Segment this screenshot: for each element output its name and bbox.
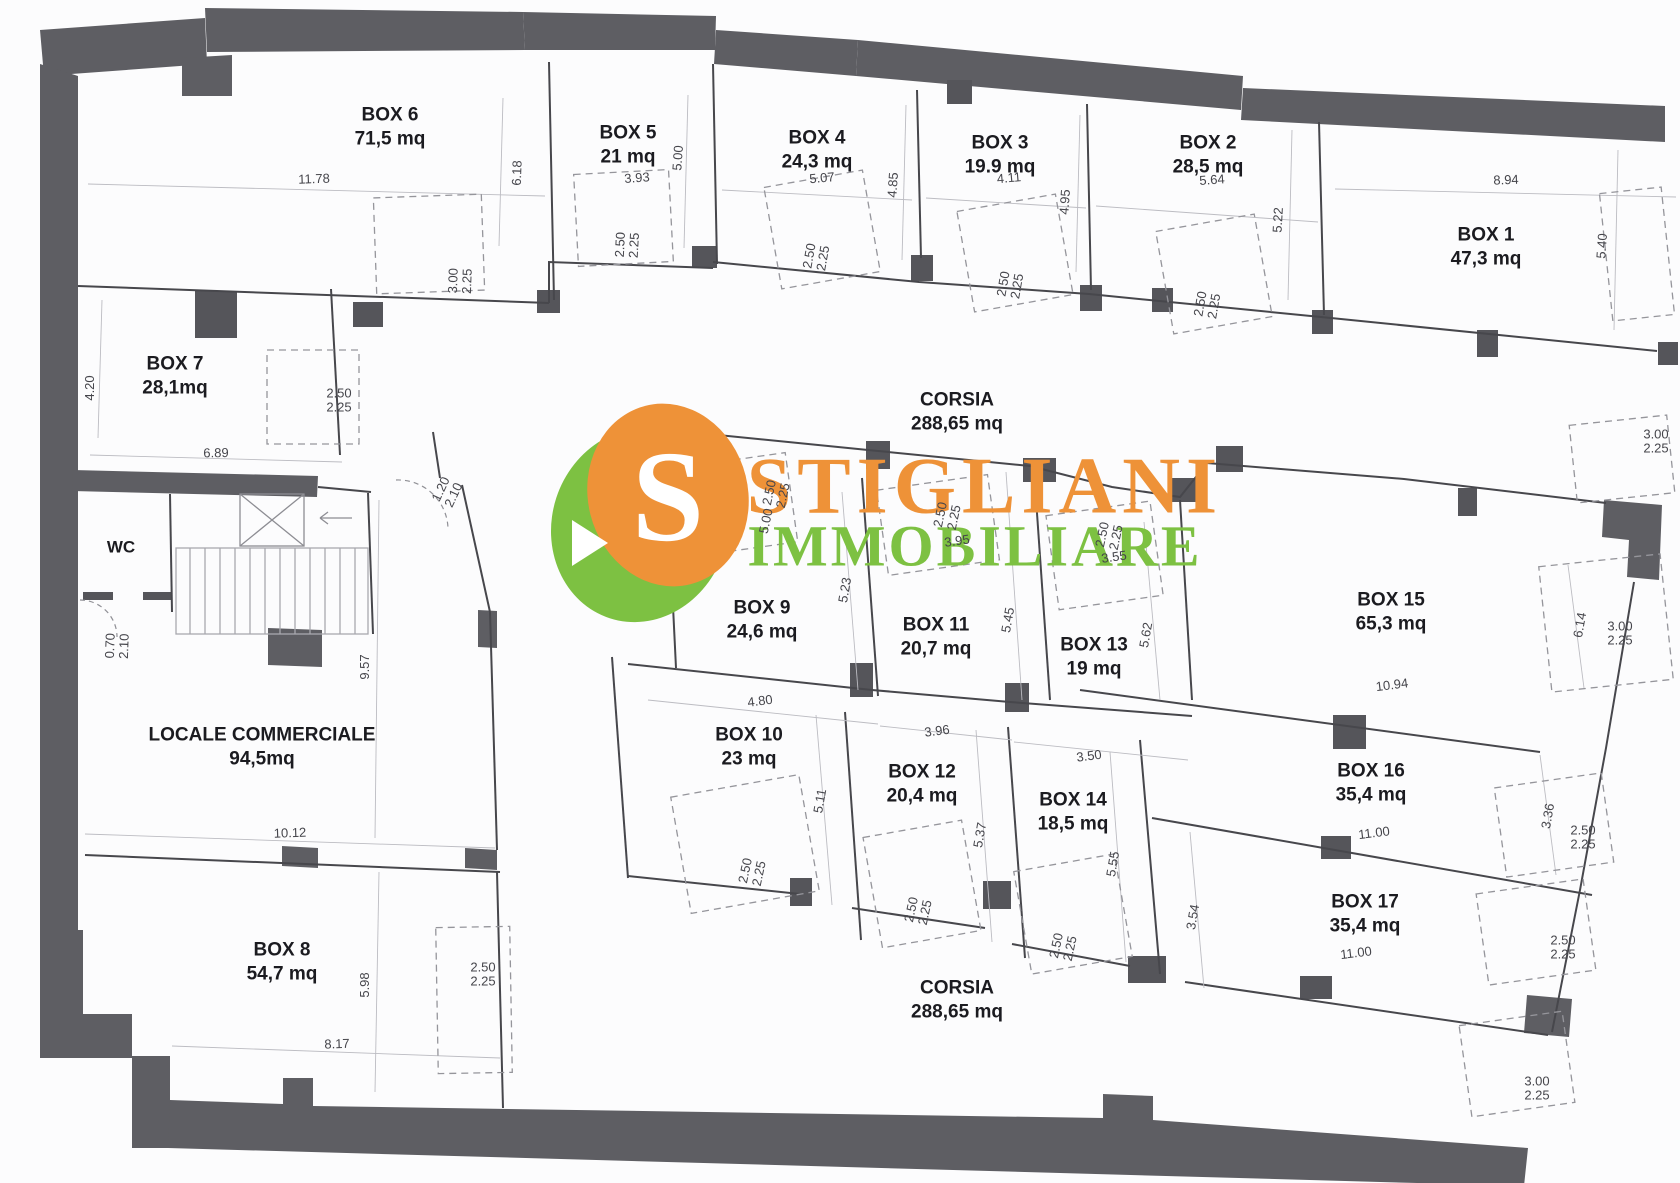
room-label-box-11: BOX 1120,7 mq [901,613,972,661]
room-label-corsia-lower: CORSIA288,65 mq [911,976,1003,1024]
dimension-label: 2.50 2.25 [1047,932,1079,962]
dimension-label: 3.00 2.25 [1643,427,1668,454]
room-label-box-17: BOX 1735,4 mq [1330,890,1401,938]
dimension-label: 5.98 [358,972,372,997]
dimension-label: 2.50 2.25 [736,857,768,887]
dimension-label: 10.12 [273,826,306,841]
room-label-box-12: BOX 1220,4 mq [887,760,958,808]
dimension-label: 2.50 2.25 [613,232,642,259]
room-label-wc: WC [107,536,135,557]
dimension-label: 5.40 [1594,233,1609,259]
dimension-label: 2.50 2.25 [931,501,963,531]
dimension-label: 2.50 2.25 [994,270,1025,300]
room-label-box-7: BOX 728,1mq [142,352,207,400]
dimension-label: 4.85 [885,172,900,198]
dimension-label: 3.00 2.25 [446,268,474,294]
room-label-box-2: BOX 228,5 mq [1173,131,1244,179]
dimension-label: 2.50 2.25 [800,242,831,272]
dimension-label: 6.89 [203,446,229,460]
dimension-label: 5.00 [670,145,685,171]
door-arc-icon [80,600,117,637]
dimension-label: 3.00 2.25 [1524,1074,1549,1101]
room-label-locale-commerciale: LOCALE COMMERCIALE94,5mq [149,723,376,771]
room-label-box-14: BOX 1418,5 mq [1038,788,1109,836]
dimension-label: 3.96 [924,723,951,740]
dimension-label: 2.50 2.25 [326,386,351,413]
floor-plan: S STIGLIANI IMMOBILIARE BOX 671,5 mq BOX… [0,0,1680,1183]
stairs-and-elevator [176,494,368,634]
dimension-label: 8.17 [324,1037,350,1052]
logo-subtitle: IMMOBILIARE [747,513,1202,580]
dimension-label: 2.50 2.25 [1093,521,1125,551]
room-label-corsia-upper: CORSIA288,65 mq [911,388,1003,436]
room-label-box-9: BOX 924,6 mq [727,596,798,644]
dimension-label: 0.70 2.10 [103,633,131,659]
dimension-label: 2.50 2.25 [1550,933,1575,960]
dimension-label: 3.93 [624,170,650,185]
room-label-box-16: BOX 1635,4 mq [1336,759,1407,807]
dimension-label: 2.50 2.25 [1191,290,1222,320]
room-label-box-8: BOX 854,7 mq [247,938,318,986]
room-label-box-15: BOX 1565,3 mq [1356,588,1427,636]
room-label-box-4: BOX 424,3 mq [782,126,853,174]
dimension-label: 4.20 [83,375,97,400]
elevator-icon [240,494,304,546]
dimension-label: 4.95 [1057,189,1072,215]
room-label-box-1: BOX 147,3 mq [1451,223,1522,271]
dimension-label: 3.50 [1076,748,1103,765]
dimension-lines [85,95,1676,1092]
svg-text:S: S [632,425,704,569]
dimension-label: 5.22 [1271,207,1286,233]
room-label-box-5: BOX 521 mq [599,121,656,169]
dimension-label: 9.57 [358,654,372,679]
room-label-box-13: BOX 1319 mq [1060,633,1128,681]
dimension-label: 2.50 2.25 [1570,823,1595,850]
room-label-box-3: BOX 319.9 mq [965,131,1036,179]
dimension-label: 11.78 [298,172,330,187]
dimension-label: 8.94 [1493,173,1519,188]
dimension-label: 6.18 [510,160,525,186]
room-label-box-10: BOX 1023 mq [715,723,783,771]
dimension-label: 2.50 2.25 [760,479,792,509]
stair-direction-arrow-icon [320,512,352,524]
room-label-box-6: BOX 671,5 mq [355,103,426,151]
dimension-label: 2.50 2.25 [902,896,934,926]
door-arcs [80,480,448,637]
dimension-label: 3.00 2.25 [1607,619,1632,646]
dimension-label: 4.80 [747,693,774,710]
dimension-label: 2.50 2.25 [470,960,495,987]
